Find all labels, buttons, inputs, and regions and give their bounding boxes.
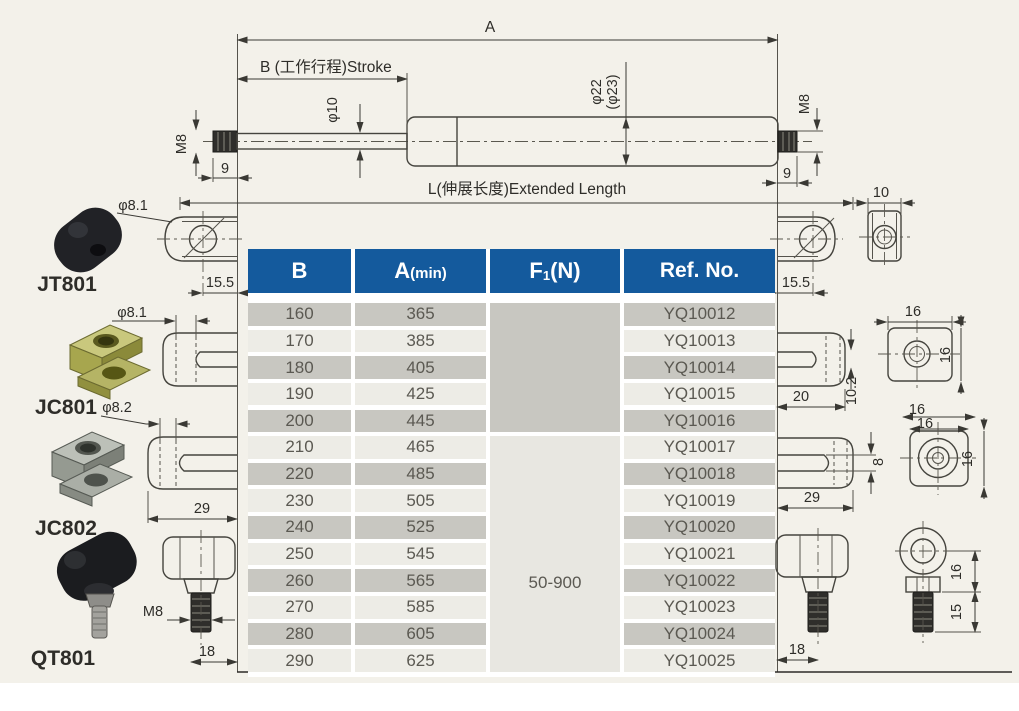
eyelet-right-side-view: 15.5 [763, 211, 843, 300]
header-a-label: A [394, 258, 410, 284]
header-f-label: F [529, 258, 542, 284]
table-cell-b: 260 [248, 569, 351, 592]
dim-phi22: φ22 [589, 79, 605, 105]
jc802-photo [52, 432, 132, 506]
header-f-unit: (N) [550, 258, 581, 284]
dim-m8-left: M8 [174, 134, 190, 154]
dim-9-left: 9 [221, 161, 229, 177]
header-ref-no: Ref. No. [624, 249, 775, 293]
jc802-label: JC802 [35, 517, 97, 540]
table-cell-a: 405 [355, 356, 486, 379]
table-cell-a: 565 [355, 569, 486, 592]
dim-phi81-jc801: φ8.1 [117, 305, 147, 321]
dim-102: 10.2 [844, 377, 860, 405]
table-cell-b: 180 [248, 356, 351, 379]
header-ref-label: Ref. No. [660, 259, 739, 283]
qt801-photo [49, 524, 145, 638]
jc802-front-view: 16 16 16 [900, 402, 984, 499]
table-cell-ref: YQ10022 [624, 569, 775, 592]
qt801-label: QT801 [31, 647, 96, 670]
dim-155-right: 15.5 [782, 275, 810, 291]
dim-phi81-jt801: φ8.1 [118, 198, 148, 214]
dim-29-right: 29 [804, 490, 820, 506]
header-a-sub: (min) [410, 265, 447, 282]
table-cell-ref: YQ10013 [624, 330, 775, 353]
dim-16-jc802-inner: 16 [917, 416, 933, 432]
jc801-photo [70, 325, 150, 399]
jc802-side-view-left: φ8.2 29 [101, 400, 237, 523]
table-cell-b: 270 [248, 596, 351, 619]
table-cell-a: 365 [355, 303, 486, 326]
datasheet-page: A B (工作行程)Stroke φ10 φ22 (φ23) M8 [0, 0, 1019, 711]
header-f-sub: 1 [543, 268, 550, 283]
table-cell-ref: YQ10017 [624, 436, 775, 459]
table-cell-ref: YQ10015 [624, 383, 775, 406]
dim-m8-qt801: M8 [143, 604, 163, 620]
qt801-front-view: 16 15 [895, 521, 981, 643]
header-b: B [248, 249, 351, 293]
dim-29-left: 29 [194, 501, 210, 517]
dim-18-right: 18 [789, 642, 805, 658]
table-cell-ref: YQ10023 [624, 596, 775, 619]
table-cell-b: 170 [248, 330, 351, 353]
qt801-side-view-left: M8 18 [143, 530, 237, 662]
dim-8-slot: 8 [871, 458, 887, 466]
jc801-front-view: 16 16 [874, 304, 966, 394]
jt801-label: JT801 [37, 273, 97, 296]
table-cell-ref: YQ10020 [624, 516, 775, 539]
table-cell-ref: YQ10025 [624, 649, 775, 672]
f1-merged-cell-range: 50-900 [490, 436, 620, 672]
dim-20: 20 [793, 389, 809, 405]
table-cell-b: 200 [248, 410, 351, 433]
table-cell-b: 250 [248, 543, 351, 566]
table-cell-a: 605 [355, 623, 486, 646]
table-cell-ref: YQ10016 [624, 410, 775, 433]
dim-a: A [485, 19, 496, 36]
table-cell-a: 625 [355, 649, 486, 672]
dim-16-jc802-h: 16 [960, 451, 976, 467]
dim-16-jc801-w: 16 [905, 304, 921, 320]
dim-10-width: 10 [873, 185, 889, 201]
table-cell-b: 240 [248, 516, 351, 539]
table-cell-ref: YQ10014 [624, 356, 775, 379]
left-thread-stud [213, 131, 237, 152]
dim-155-left: 15.5 [206, 275, 234, 291]
gas-spring-side-view: A B (工作行程)Stroke φ10 φ22 (φ23) M8 [174, 19, 853, 210]
header-a-min: A(min) [355, 249, 486, 293]
table-cell-ref: YQ10021 [624, 543, 775, 566]
dim-16-ball: 16 [949, 564, 965, 580]
table-body: 50-900 160365YQ10012170385YQ10013180405Y… [248, 293, 775, 677]
jc802-side-view-right: 8 29 [778, 432, 887, 512]
dim-m8-right: M8 [797, 94, 813, 114]
dim-phi23: (φ23) [605, 74, 621, 109]
table-cell-b: 190 [248, 383, 351, 406]
jc801-label: JC801 [35, 396, 97, 419]
jc801-side-view-right: 20 10.2 [777, 329, 860, 411]
dim-16-jc801-h: 16 [938, 347, 954, 363]
table-cell-a: 525 [355, 516, 486, 539]
table-cell-ref: YQ10019 [624, 489, 775, 512]
table-cell-b: 230 [248, 489, 351, 512]
dim-l-extended: L(伸展长度)Extended Length [428, 180, 626, 198]
table-cell-ref: YQ10024 [624, 623, 775, 646]
table-cell-b: 280 [248, 623, 351, 646]
table-cell-a: 425 [355, 383, 486, 406]
dim-18-left: 18 [199, 644, 215, 660]
table-header-row: B A(min) F1(N) Ref. No. [248, 249, 775, 293]
dim-15-ball: 15 [949, 604, 965, 620]
header-b-label: B [292, 258, 308, 284]
table-cell-a: 545 [355, 543, 486, 566]
dim-phi10: φ10 [325, 97, 341, 123]
table-cell-ref: YQ10012 [624, 303, 775, 326]
table-cell-b: 160 [248, 303, 351, 326]
table-cell-ref: YQ10018 [624, 463, 775, 486]
table-cell-b: 210 [248, 436, 351, 459]
table-cell-b: 220 [248, 463, 351, 486]
table-cell-b: 290 [248, 649, 351, 672]
table-cell-a: 445 [355, 410, 486, 433]
header-f1n: F1(N) [490, 249, 620, 293]
spec-table: B A(min) F1(N) Ref. No. 50-900 160365YQ1… [248, 249, 775, 677]
qt801-side-view-right: 18 [776, 528, 848, 660]
table-cell-a: 505 [355, 489, 486, 512]
table-cell-a: 485 [355, 463, 486, 486]
table-cell-a: 465 [355, 436, 486, 459]
f1-merged-cell-empty [490, 303, 620, 432]
dim-phi82: φ8.2 [102, 400, 132, 416]
eyelet-front-view: 10 [854, 185, 915, 269]
table-cell-a: 385 [355, 330, 486, 353]
dim-b-stroke: B (工作行程)Stroke [260, 58, 392, 76]
table-cell-a: 585 [355, 596, 486, 619]
dim-9-right: 9 [783, 166, 791, 182]
